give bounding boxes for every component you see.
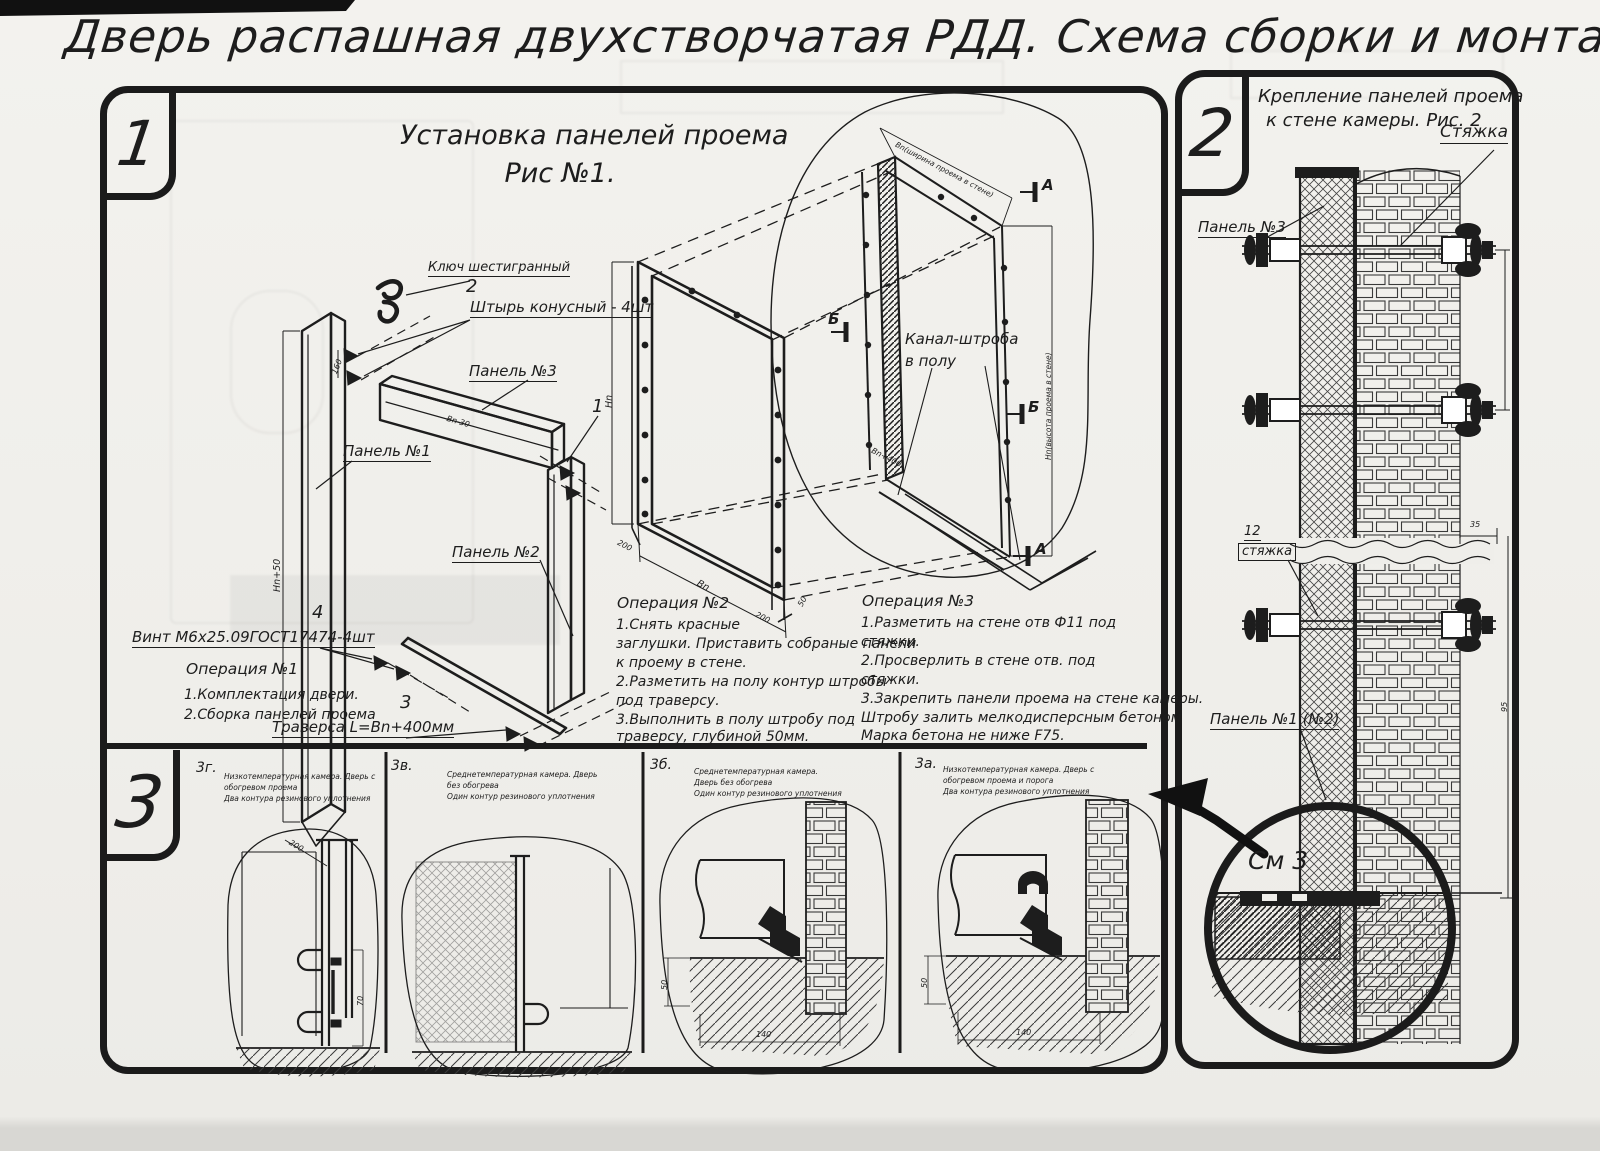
dim-95: 95 — [1500, 702, 1509, 712]
fig1-title: Установка панелей проема — [400, 120, 720, 151]
section-marker-a: А — [1035, 540, 1047, 558]
sheet-title: Дверь распашная двухстворчатая РДД. Схем… — [62, 10, 1578, 63]
operation3-line: Штробу залить мелкодисперсным бетоном — [861, 709, 1181, 728]
panel3-label-fig2: Панель №3 — [1198, 218, 1286, 238]
operation3-line: 1.Разметить на стене отв Ф11 под — [861, 614, 1116, 633]
channel-label: Канал-штроба — [905, 330, 1018, 348]
section3-badge: 3 — [107, 750, 180, 861]
traverse-item-number: 3 — [400, 692, 411, 713]
operation3-line: стяжки. — [861, 671, 920, 690]
dim-floor-depth: 50 — [920, 978, 929, 988]
operation1-title: Операция №1 — [186, 660, 298, 678]
dim-floor-depth: 50 — [660, 980, 669, 990]
fig2-title: Крепление панелей проема — [1258, 86, 1523, 107]
section-marker-a: А — [1042, 176, 1054, 194]
detail-caption: Низкотемпературная камера. Дверь с обогр… — [224, 772, 384, 805]
dim-35: 35 — [1470, 520, 1480, 529]
detail-code: 3а. — [915, 756, 937, 772]
operation3-line: стяжки. — [861, 633, 920, 652]
screw-item-number: 4 — [312, 602, 323, 623]
section-marker-b: Б — [1028, 398, 1039, 416]
operation2-line: 2.Разметить на полу контур штробы — [616, 673, 887, 692]
channel-label: в полу — [905, 352, 956, 370]
screw-label: Винт М6х25.09ГОСТ17474-4шт — [132, 628, 375, 648]
dim-threshold-width: 140 — [1016, 1028, 1031, 1037]
operation2-line: 1.Снять красные — [616, 616, 740, 635]
operation2-line: траверсу, глубиной 50мм. — [616, 728, 809, 747]
operation1-line: 2.Сборка панелей проема — [184, 706, 376, 725]
detail-code: 3б. — [650, 757, 672, 773]
operation2-line: под траверсу. — [616, 692, 720, 711]
panel12-label: Панель №1 (№2) — [1210, 710, 1339, 730]
panel2-label: Панель №2 — [452, 543, 540, 563]
hex-key-icon — [378, 281, 401, 321]
dim-frame-height: Hn — [604, 395, 615, 408]
tie-label-small: стяжка — [1238, 543, 1296, 561]
operation3-line: Марка бетона не ниже F75. — [861, 727, 1065, 746]
section2-badge: 2 — [1182, 77, 1249, 196]
drawing-sheet: Дверь распашная двухстворчатая РДД. Схем… — [0, 0, 1600, 1151]
detail-caption: Низкотемпературная камера. Дверь с обогр… — [943, 765, 1113, 798]
tie-label: Стяжка — [1440, 122, 1508, 144]
section-marker-b: Б — [828, 310, 839, 328]
fig1-number: Рис №1. — [400, 158, 720, 189]
detail-code: 3в. — [391, 758, 413, 774]
detail-code: 3г. — [196, 760, 217, 776]
detail-caption: Среднетемпературная камера. Дверь без об… — [694, 767, 844, 800]
dim-opening-height: Hn(высота проема в стене) — [1044, 352, 1053, 460]
operation2-line: к проему в стене. — [616, 654, 747, 673]
operation2-title: Операция №2 — [617, 594, 729, 612]
pin-item-number: 2 — [466, 276, 477, 297]
item1-number: 1 — [592, 396, 603, 417]
line-art — [0, 0, 1600, 1151]
operation3-line: 2.Просверлить в стене отв. под — [861, 652, 1095, 671]
tie-item-number: 12 — [1244, 524, 1261, 541]
operation1-line: 1.Комплектация двери. — [184, 686, 359, 705]
pin-label: Штырь конусный - 4шт — [470, 298, 653, 318]
detail-caption: Среднетемпературная камера. Дверь без об… — [447, 770, 607, 803]
operation3-line: 3.Закрепить панели проема на стене камер… — [861, 690, 1203, 709]
dim-threshold-width: 140 — [756, 1030, 771, 1039]
panel1-label: Панель №1 — [343, 442, 431, 462]
panel3-label: Панель №3 — [469, 362, 557, 382]
see-detail-label: См 3 — [1248, 846, 1308, 875]
dim-seal-height: 70 — [356, 996, 365, 1006]
hex-key-label: Ключ шестигранный — [428, 260, 570, 277]
operation3-title: Операция №3 — [862, 592, 974, 610]
section1-badge: 1 — [107, 93, 176, 200]
dim-panel1-height: Hn+50 — [272, 559, 283, 592]
